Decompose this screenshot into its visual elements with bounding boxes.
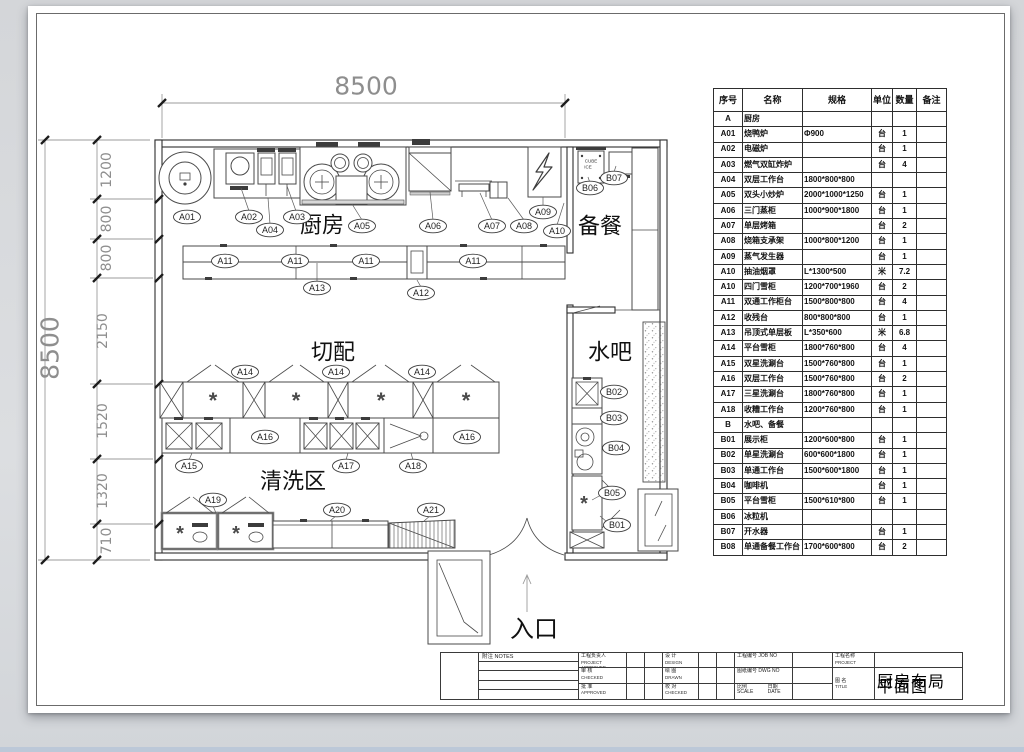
table-cell: A02 — [714, 142, 743, 157]
table-cell: 1 — [893, 127, 917, 142]
svg-text:A14: A14 — [237, 367, 253, 377]
svg-text:A07: A07 — [484, 221, 500, 231]
column-header: 序号 — [714, 89, 743, 112]
table-cell: 四门雪柜 — [743, 280, 803, 295]
svg-text:水吧: 水吧 — [588, 341, 632, 366]
svg-text:A05: A05 — [354, 221, 370, 231]
svg-text:A20: A20 — [329, 505, 345, 515]
table-cell: 台 — [872, 127, 893, 142]
table-cell: A04 — [714, 173, 743, 188]
tag-a01: A01 — [174, 210, 201, 224]
svg-text:800: 800 — [99, 206, 115, 233]
bottom-edge-strip — [0, 747, 1024, 752]
table-cell: A13 — [714, 326, 743, 341]
table-cell: A14 — [714, 341, 743, 356]
table-cell: A06 — [714, 203, 743, 218]
svg-text:B02: B02 — [606, 387, 622, 397]
table-cell: A09 — [714, 249, 743, 264]
table-cell: A10 — [714, 264, 743, 279]
table-cell: 冰粒机 — [743, 509, 803, 524]
table-row: B01展示柜1200*600*800台1 — [714, 433, 947, 448]
table-cell: 1 — [893, 525, 917, 540]
tag-b05: B05 — [599, 486, 626, 500]
table-cell — [803, 417, 872, 432]
table-row: A16双层工作台1500*760*800台2 — [714, 372, 947, 387]
table-cell: 台 — [872, 402, 893, 417]
table-cell: B — [714, 417, 743, 432]
table-cell: 开水器 — [743, 525, 803, 540]
title-block: 附注 NOTES 工程负责人PROJECT APPROVED 审 核CHECKE… — [440, 652, 963, 700]
table-cell — [803, 157, 872, 172]
table-cell — [917, 540, 947, 555]
table-row: A10四门雪柜1200*700*1960台2 — [714, 280, 947, 295]
dim-label: 800 — [99, 206, 115, 233]
dim-label: 1520 — [95, 403, 111, 439]
table-cell: A15 — [714, 356, 743, 371]
collection-station-a12 — [407, 246, 427, 279]
project-title-labels: 工程名称PROJECT 图 名TITLE — [833, 653, 875, 699]
glyph-label: * — [176, 523, 184, 545]
tiny-label: CUBE — [585, 159, 598, 164]
tag-a19: A19 — [200, 493, 227, 507]
table-cell: 咖啡机 — [743, 479, 803, 494]
column-header: 数量 — [893, 89, 917, 112]
svg-text:*: * — [292, 388, 301, 413]
table-cell: 单通工作台 — [743, 463, 803, 478]
table-cell: 4 — [893, 295, 917, 310]
svg-text:A21: A21 — [423, 505, 439, 515]
table-cell: 1 — [893, 203, 917, 218]
svg-text:800: 800 — [99, 245, 115, 272]
table-cell: 厨房 — [743, 112, 803, 127]
svg-text:*: * — [377, 388, 386, 413]
table-cell: B04 — [714, 479, 743, 494]
table-cell — [917, 341, 947, 356]
table-cell: 台 — [872, 234, 893, 249]
table-row: A03燃气双缸炸炉台4 — [714, 157, 947, 172]
glyph-label: * — [462, 388, 471, 413]
table-cell: 米 — [872, 326, 893, 341]
svg-text:1520: 1520 — [95, 403, 111, 439]
leader-line — [557, 203, 564, 225]
table-cell: A08 — [714, 234, 743, 249]
svg-text:A18: A18 — [405, 461, 421, 471]
svg-text:*: * — [176, 523, 184, 545]
table-cell: 台 — [872, 525, 893, 540]
table-cell: 800*800*800 — [803, 310, 872, 325]
table-cell: 1 — [893, 448, 917, 463]
table-cell: 2 — [893, 219, 917, 234]
svg-text:A02: A02 — [241, 212, 257, 222]
svg-text:A19: A19 — [205, 495, 221, 505]
table-cell: B02 — [714, 448, 743, 463]
table-cell: 1500*760*800 — [803, 372, 872, 387]
svg-text:B05: B05 — [604, 488, 620, 498]
table-cell — [893, 509, 917, 524]
triple-sink-a17 — [300, 417, 384, 453]
table-header-row: 序号名称规格单位数量备注 — [714, 89, 947, 112]
tag-b01: B01 — [604, 518, 631, 532]
table-cell: 台 — [872, 387, 893, 402]
dim-label: 8500 — [334, 72, 398, 101]
table-row: B06冰粒机 — [714, 509, 947, 524]
tag-a11: A11 — [282, 254, 309, 268]
table-cell: 台 — [872, 463, 893, 478]
table-cell: A — [714, 112, 743, 127]
counter-a20 — [273, 519, 388, 548]
table-cell — [917, 479, 947, 494]
table-cell: 台 — [872, 203, 893, 218]
svg-text:ICE: ICE — [584, 165, 592, 170]
tag-a16: A16 — [454, 430, 481, 444]
svg-text:A03: A03 — [289, 212, 305, 222]
svg-text:*: * — [232, 523, 240, 545]
table-cell: 1 — [893, 479, 917, 494]
table-cell — [803, 112, 872, 127]
tag-b04: B04 — [603, 441, 630, 455]
table-cell: B05 — [714, 494, 743, 509]
tag-a06: A06 — [420, 219, 447, 233]
table-row: A17三星洗涮台1800*760*800台1 — [714, 387, 947, 402]
table-row: A厨房 — [714, 112, 947, 127]
table-cell: 双头小炒炉 — [743, 188, 803, 203]
tag-a21: A21 — [418, 503, 445, 517]
tag-a13: A13 — [304, 281, 331, 295]
drainboard-a21 — [389, 520, 455, 548]
svg-text:B06: B06 — [582, 183, 598, 193]
table-cell: 双层工作台 — [743, 372, 803, 387]
table-cell: 台 — [872, 295, 893, 310]
table-cell: 4 — [893, 341, 917, 356]
table-cell — [803, 509, 872, 524]
table-row: B02单星洗涮台600*600*1800台1 — [714, 448, 947, 463]
table-row: B03单通工作台1500*600*1800台1 — [714, 463, 947, 478]
table-row: B04咖啡机台1 — [714, 479, 947, 494]
table-cell: B06 — [714, 509, 743, 524]
table-cell: 1 — [893, 387, 917, 402]
table-cell — [917, 509, 947, 524]
tag-a14: A14 — [409, 365, 436, 379]
table-cell: A07 — [714, 219, 743, 234]
table-row: A10抽油烟罩L*1300*500米7.2 — [714, 264, 947, 279]
notes-area: 附注 NOTES — [479, 653, 579, 699]
room-label: 清洗区 — [260, 470, 326, 495]
room-label: 切配 — [311, 341, 355, 366]
table-cell: 1 — [893, 234, 917, 249]
table-cell: 燃气双缸炸炉 — [743, 157, 803, 172]
table-cell — [917, 264, 947, 279]
svg-text:B01: B01 — [609, 520, 625, 530]
room-label: 入口 — [510, 615, 558, 643]
table-row: A09蒸气发生器台1 — [714, 249, 947, 264]
svg-text:A11: A11 — [358, 256, 373, 266]
svg-text:B03: B03 — [606, 413, 622, 423]
table-cell: 平台雪柜 — [743, 341, 803, 356]
table-row: B07开水器台1 — [714, 525, 947, 540]
table-row: B05平台雪柜1500*610*800台1 — [714, 494, 947, 509]
table-cell — [917, 372, 947, 387]
table-cell: 1500*610*800 — [803, 494, 872, 509]
table-cell — [917, 417, 947, 432]
leader-line — [430, 192, 433, 220]
svg-text:A15: A15 — [181, 461, 197, 471]
table-cell: 600*600*1800 — [803, 448, 872, 463]
table-cell: B03 — [714, 463, 743, 478]
table-cell — [917, 280, 947, 295]
table-cell — [917, 402, 947, 417]
table-row: A01烧鸭炉Φ900台1 — [714, 127, 947, 142]
table-cell: 1800*760*800 — [803, 387, 872, 402]
table-cell: 1200*760*800 — [803, 402, 872, 417]
svg-text:A09: A09 — [535, 207, 551, 217]
svg-text:A14: A14 — [328, 367, 344, 377]
table-cell — [893, 173, 917, 188]
table-cell — [917, 142, 947, 157]
table-cell — [917, 249, 947, 264]
table-cell — [917, 173, 947, 188]
tag-a11: A11 — [460, 254, 487, 268]
svg-text:B07: B07 — [606, 173, 622, 183]
table-cell: 三门蒸柜 — [743, 203, 803, 218]
svg-text:备餐: 备餐 — [578, 215, 622, 240]
table-cell: 烧箱支承架 — [743, 234, 803, 249]
table-cell: 台 — [872, 219, 893, 234]
table-row: A13吊顶式单层板L*350*600米6.8 — [714, 326, 947, 341]
service-counter — [632, 148, 658, 310]
table-cell: 蒸气发生器 — [743, 249, 803, 264]
table-cell: 三星洗涮台 — [743, 387, 803, 402]
leader-line — [352, 204, 362, 220]
table-cell — [893, 112, 917, 127]
table-cell — [917, 234, 947, 249]
table-cell — [872, 112, 893, 127]
table-cell: 1 — [893, 310, 917, 325]
table-cell — [872, 173, 893, 188]
table-cell: A01 — [714, 127, 743, 142]
tag-a14: A14 — [323, 365, 350, 379]
tag-b06: B06 — [577, 181, 604, 195]
column-header: 名称 — [743, 89, 803, 112]
svg-text:*: * — [462, 388, 471, 413]
equipment-table: 序号名称规格单位数量备注A厨房A01烧鸭炉Φ900台1A02电磁炉台1A03燃气… — [713, 88, 947, 556]
table-cell: 台 — [872, 372, 893, 387]
table-cell: L*350*600 — [803, 326, 872, 341]
table-row: A05双头小炒炉2000*1000*1250台1 — [714, 188, 947, 203]
numbering-labels: 工程编号 JOB NO 图纸编号 DWG NO 比例 SCALE 日期 DATE — [735, 653, 793, 699]
svg-text:8500: 8500 — [36, 316, 65, 380]
table-cell: 1 — [893, 356, 917, 371]
tag-a07: A07 — [479, 219, 506, 233]
table-cell — [803, 219, 872, 234]
table-row: A12收残台800*800*800台1 — [714, 310, 947, 325]
svg-text:A06: A06 — [425, 221, 441, 231]
table-cell: 1 — [893, 433, 917, 448]
table-cell: 烧鸭炉 — [743, 127, 803, 142]
table-cell: 1 — [893, 249, 917, 264]
table-cell: 1000*800*1200 — [803, 234, 872, 249]
room-label: 水吧 — [588, 341, 632, 366]
room-label: 备餐 — [578, 215, 622, 240]
dim-label: 1200 — [99, 152, 115, 188]
table-cell: A16 — [714, 372, 743, 387]
table-cell: A05 — [714, 188, 743, 203]
table-cell: L*1300*500 — [803, 264, 872, 279]
table-cell: 单星洗涮台 — [743, 448, 803, 463]
tag-a18: A18 — [400, 459, 427, 473]
table-cell: 台 — [872, 479, 893, 494]
tag-a04: A04 — [257, 223, 284, 237]
table-cell: A17 — [714, 387, 743, 402]
tag-a02: A02 — [236, 210, 263, 224]
table-cell: 双层工作台 — [743, 173, 803, 188]
table-row: A15双星洗涮台1500*760*800台1 — [714, 356, 947, 371]
table-row: B水吧、备餐 — [714, 417, 947, 432]
table-cell: 台 — [872, 341, 893, 356]
dim-label: 1320 — [95, 473, 111, 509]
numbering-values — [793, 653, 833, 699]
tag-a17: A17 — [333, 459, 360, 473]
table-cell: 1800*760*800 — [803, 341, 872, 356]
table-cell: 平台雪柜 — [743, 494, 803, 509]
tag-a05: A05 — [349, 219, 376, 233]
svg-text:A11: A11 — [465, 256, 480, 266]
svg-text:入口: 入口 — [510, 615, 558, 643]
glyph-label: * — [377, 388, 386, 413]
tag-a09: A09 — [530, 205, 557, 219]
glyph-label: * — [232, 523, 240, 545]
drawing-title: 厨房布局平面图 — [877, 679, 961, 690]
duck-roaster-a01 — [159, 152, 211, 204]
table-cell — [803, 249, 872, 264]
svg-text:清洗区: 清洗区 — [260, 470, 326, 495]
table-cell: 单通备餐工作台 — [743, 540, 803, 555]
svg-text:A04: A04 — [262, 225, 278, 235]
table-cell: 1500*800*800 — [803, 295, 872, 310]
table-row: A02电磁炉台1 — [714, 142, 947, 157]
table-row: A07单层烤箱台2 — [714, 219, 947, 234]
table-cell: 双通工作柜台 — [743, 295, 803, 310]
table-cell — [917, 387, 947, 402]
table-cell: 1000*900*1800 — [803, 203, 872, 218]
svg-text:A13: A13 — [309, 283, 325, 293]
notes-header: 附注 NOTES — [479, 653, 578, 662]
svg-text:A10: A10 — [549, 226, 565, 236]
table-cell: 台 — [872, 142, 893, 157]
signature-cells — [717, 653, 735, 699]
table-cell: 电磁炉 — [743, 142, 803, 157]
title-block-empty-cell — [441, 653, 479, 699]
leader-line — [508, 198, 524, 220]
table-cell: B01 — [714, 433, 743, 448]
table-cell — [872, 509, 893, 524]
signature-cells — [645, 653, 663, 699]
oven-table-a07 — [455, 181, 492, 197]
table-cell: Φ900 — [803, 127, 872, 142]
steam-generator-a09 — [528, 147, 561, 197]
svg-text:A17: A17 — [338, 461, 354, 471]
svg-text:1200: 1200 — [99, 152, 115, 188]
steam-cabinet-a06 — [409, 139, 451, 195]
table-cell — [803, 479, 872, 494]
svg-text:*: * — [580, 493, 588, 515]
table-cell: 台 — [872, 310, 893, 325]
table-cell: 4 — [893, 157, 917, 172]
svg-text:*: * — [209, 388, 218, 413]
svg-text:A16: A16 — [257, 432, 273, 442]
table-cell: 1500*760*800 — [803, 356, 872, 371]
table-row: A18收糟工作台1200*760*800台1 — [714, 402, 947, 417]
drawing-title-cell: 厨房布局平面图 — [875, 653, 962, 699]
table-cell — [803, 525, 872, 540]
table-cell: 双星洗涮台 — [743, 356, 803, 371]
dim-label: 800 — [99, 245, 115, 272]
table-cell — [872, 417, 893, 432]
tag-a10: A10 — [544, 224, 571, 238]
table-cell: A10 — [714, 280, 743, 295]
table-row: A08烧箱支承架1000*800*1200台1 — [714, 234, 947, 249]
table-cell: 1700*600*800 — [803, 540, 872, 555]
svg-text:A01: A01 — [179, 212, 195, 222]
table-cell — [917, 448, 947, 463]
tag-b03: B03 — [601, 411, 628, 425]
table-row: A11双通工作柜台1500*800*800台4 — [714, 295, 947, 310]
table-cell: B07 — [714, 525, 743, 540]
table-cell: 单层烤箱 — [743, 219, 803, 234]
table-cell — [917, 157, 947, 172]
svg-text:A16: A16 — [459, 432, 475, 442]
tag-a16: A16 — [252, 430, 279, 444]
table-cell: B08 — [714, 540, 743, 555]
drafting-labels: 设 计DESIGN 绘 图DRAWN 校 对CHECKED — [663, 653, 699, 699]
table-row: B08单通备餐工作台1700*600*800台2 — [714, 540, 947, 555]
svg-text:8500: 8500 — [334, 72, 398, 101]
tag-a11: A11 — [212, 254, 239, 268]
table-cell: 收糟工作台 — [743, 402, 803, 417]
table-cell: 台 — [872, 433, 893, 448]
table-cell: A11 — [714, 295, 743, 310]
signature-cells — [699, 653, 717, 699]
table-cell — [917, 127, 947, 142]
tag-a03: A03 — [284, 210, 311, 224]
table-cell: 展示柜 — [743, 433, 803, 448]
table-row: A06三门蒸柜1000*900*1800台1 — [714, 203, 947, 218]
table-cell — [917, 463, 947, 478]
tag-a15: A15 — [176, 459, 203, 473]
svg-text:CUBE: CUBE — [585, 159, 598, 164]
table-cell — [893, 417, 917, 432]
table-cell: 台 — [872, 157, 893, 172]
table-cell: 米 — [872, 264, 893, 279]
table-row: A14平台雪柜1800*760*800台4 — [714, 341, 947, 356]
table-cell: A18 — [714, 402, 743, 417]
table-cell — [917, 219, 947, 234]
tag-b02: B02 — [601, 385, 628, 399]
table-cell: 收残台 — [743, 310, 803, 325]
tag-a14: A14 — [232, 365, 259, 379]
waste-table-a18 — [384, 418, 433, 453]
table-cell: 1 — [893, 142, 917, 157]
table-cell: 1500*600*1800 — [803, 463, 872, 478]
table-cell: A12 — [714, 310, 743, 325]
svg-text:B04: B04 — [608, 443, 624, 453]
table-cell: 1200*700*1960 — [803, 280, 872, 295]
tag-b07: B07 — [601, 171, 628, 185]
entrance-door — [489, 518, 564, 612]
table-cell — [917, 326, 947, 341]
column-header: 单位 — [872, 89, 893, 112]
table-cell: 台 — [872, 188, 893, 203]
table-cell — [917, 203, 947, 218]
